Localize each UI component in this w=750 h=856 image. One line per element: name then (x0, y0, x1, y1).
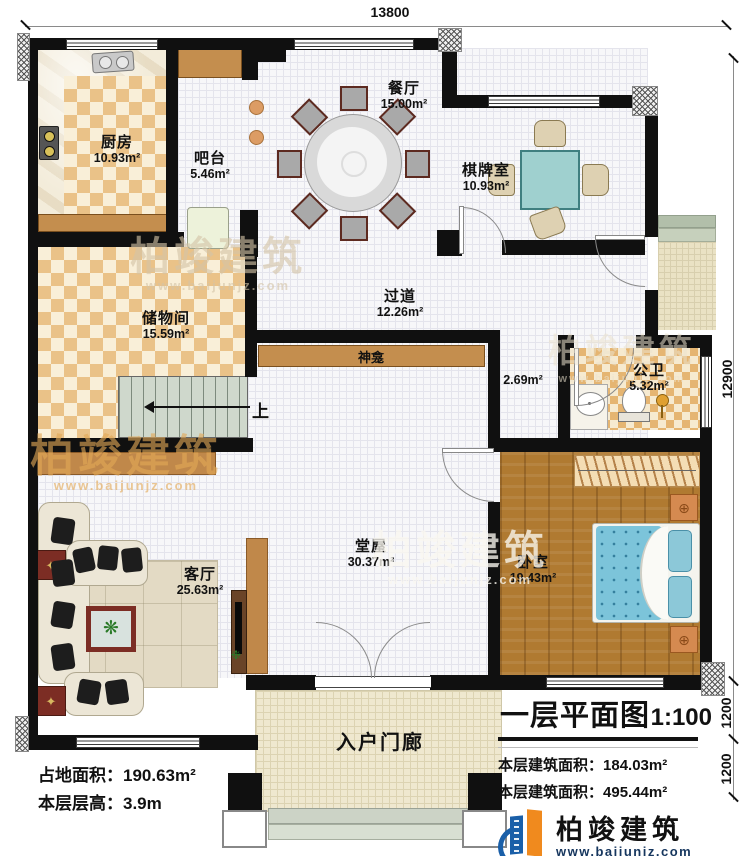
porch-pillar (468, 773, 502, 810)
toilet-base (618, 412, 650, 422)
sink-basin (116, 56, 129, 69)
wall (240, 210, 258, 257)
wall (28, 438, 253, 452)
dining-table-ring (341, 151, 367, 177)
room-label-living: 客厅25.63m² (177, 566, 224, 597)
sofa-cushion (121, 547, 143, 573)
door-leaf-bathroom (574, 348, 579, 406)
logo-tower-orange (527, 809, 542, 856)
wardrobe (574, 455, 700, 487)
bar-stool (249, 130, 264, 145)
room-label-bathroom: 公卫5.32m² (629, 362, 669, 393)
dining-chair (340, 216, 368, 241)
sink-basin (99, 56, 112, 69)
brand-logo: 柏竣建筑 www.baijunjz.com (498, 810, 714, 856)
stairs-arrow-head (144, 401, 154, 413)
porch-step (268, 824, 468, 840)
title-underline (498, 737, 698, 741)
hatch-ne (632, 86, 658, 116)
kitchen-counter (38, 214, 168, 232)
tv-feature-wall (246, 538, 268, 674)
room-label-hall: 堂屋30.37m² (348, 538, 395, 569)
dimension-line-top (25, 26, 727, 27)
shrine-area: 2.69m² (503, 373, 543, 387)
title-block: 一层平面图 1:100 本层建筑面积：184.03m² 本层建筑面积：495.4… (498, 692, 714, 856)
wall (28, 232, 184, 247)
wall (256, 48, 286, 62)
floor-area-line-1: 本层建筑面积：184.03m² (498, 754, 714, 775)
sofa-cushion (50, 517, 75, 546)
chess-chair (582, 164, 609, 196)
room-label-chess: 棋牌室10.93m² (462, 162, 510, 193)
wall (558, 348, 570, 443)
terrace-step-2 (658, 228, 716, 242)
door-leaf-terrace (595, 235, 645, 240)
sofa-cushion (50, 600, 76, 629)
sideboard (36, 452, 216, 475)
brand-url: www.baijunjz.com (556, 844, 692, 856)
logo-tower-blue (510, 815, 523, 854)
room-label-kitchen: 厨房10.93m² (94, 134, 141, 165)
window-living (76, 737, 200, 748)
hatch-nw (17, 33, 30, 81)
bar-stool (249, 100, 264, 115)
shrine-label: 神龛 (358, 347, 384, 366)
hatch-sw (15, 716, 29, 752)
fridge (187, 207, 229, 249)
stairs-up-label: 上 (252, 397, 269, 422)
sofa-cushion (50, 559, 75, 587)
wardrobe-rail (578, 470, 696, 471)
wall (246, 675, 316, 690)
window-chess (488, 96, 600, 107)
dining-chair (405, 150, 430, 178)
dimension-top-value: 13800 (355, 4, 425, 20)
tv-screen (235, 602, 242, 654)
nightstand: ⊕ (670, 626, 698, 653)
wall (558, 335, 574, 348)
wall (28, 38, 38, 750)
window-bedroom (546, 677, 664, 688)
brand-logo-icon (498, 810, 550, 856)
sofa-cushion (104, 679, 129, 706)
room-label-porch: 入户门廊 (336, 735, 424, 752)
brand-name: 柏竣建筑 (556, 816, 692, 844)
wall (250, 330, 490, 343)
dimension-right-main: 12900 (719, 344, 735, 414)
window-bathroom (701, 356, 711, 428)
door-leaf-bedroom (442, 448, 494, 453)
sofa-armchair (64, 672, 144, 716)
room-label-corridor: 过道12.26m² (377, 288, 424, 319)
nightstand: ⊕ (670, 494, 698, 521)
end-table: ✦ (36, 686, 66, 716)
sofa-cushion (76, 678, 102, 705)
dining-chair (340, 86, 368, 111)
room-label-bar: 吧台5.46m² (190, 150, 230, 181)
stove-burner (44, 146, 55, 157)
wall (245, 255, 257, 377)
hatch-top-mid (438, 28, 462, 52)
window-kitchen (66, 39, 158, 49)
chess-chair (534, 120, 566, 147)
porch-step (268, 808, 468, 824)
room-label-dining: 餐厅15.00m² (381, 80, 428, 111)
sofa-cushion (50, 643, 75, 672)
site-info: 占地面积：190.63m² 本层层高：3.9m (38, 762, 196, 818)
room-label-bedroom: 卧室19.43m² (510, 554, 557, 585)
chess-table (520, 150, 580, 210)
floor-area-line-2: 本层建筑面积：495.44m² (498, 781, 714, 802)
wall (488, 438, 712, 452)
porch-pillar (228, 773, 262, 810)
window-dining (294, 39, 414, 49)
plan-title: 一层平面图 (500, 692, 650, 734)
dining-chair (277, 150, 302, 178)
sofa-cushion (97, 545, 119, 571)
bed-pillow (668, 576, 692, 618)
site-area-line: 占地面积：190.63m² (38, 762, 196, 790)
terrace-floor (658, 242, 716, 330)
wall (488, 330, 500, 448)
bed-pillow (668, 530, 692, 572)
floor-drain-stem (661, 405, 663, 418)
bar-counter (178, 48, 242, 78)
dim-tick (721, 20, 732, 31)
title-thin-line (498, 747, 698, 748)
floor-height-line: 本层层高：3.9m (38, 790, 196, 818)
terrace-step-1 (658, 215, 716, 228)
stairs-arrow-line (152, 406, 250, 408)
wall (166, 48, 178, 232)
floor-plan-page: 13800 12900 1200 1200 (0, 0, 750, 856)
door-leaf-chess (459, 206, 464, 254)
coffee-table: ❋ (86, 606, 136, 652)
room-label-storage: 储物间15.59m² (142, 310, 190, 341)
wall (645, 95, 658, 237)
plan-scale: 1:100 (651, 704, 712, 732)
porch-pillar-base (222, 810, 267, 848)
wall (488, 502, 500, 675)
dim-tick (20, 20, 31, 31)
wall (430, 675, 490, 690)
stove-burner (44, 131, 55, 142)
tv-plant: ❉ (231, 648, 241, 662)
